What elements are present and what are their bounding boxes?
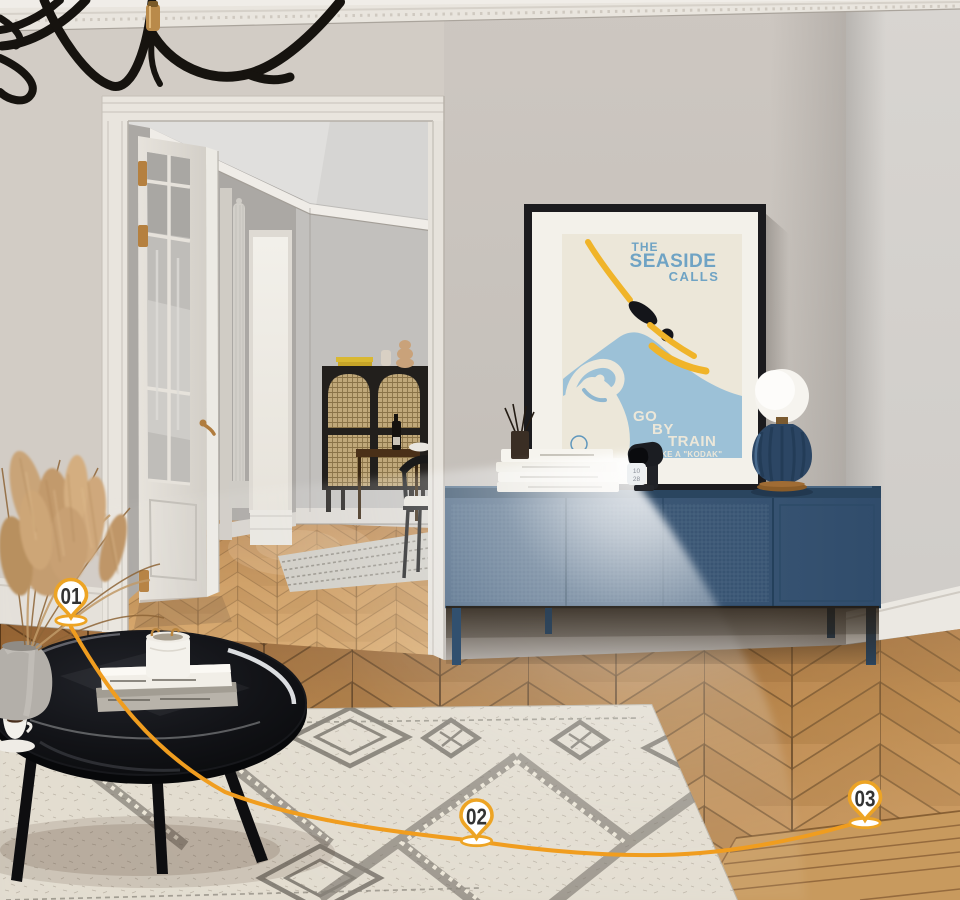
svg-text:01: 01 [61, 583, 82, 609]
svg-text:03: 03 [855, 786, 876, 812]
svg-text:02: 02 [466, 804, 487, 830]
svg-text:CALLS: CALLS [669, 269, 720, 284]
svg-text:10: 10 [633, 468, 641, 475]
svg-text:28: 28 [633, 476, 641, 483]
svg-text:TRAIN: TRAIN [668, 433, 716, 450]
svg-text:AKE A "KODAK": AKE A "KODAK" [655, 450, 722, 459]
